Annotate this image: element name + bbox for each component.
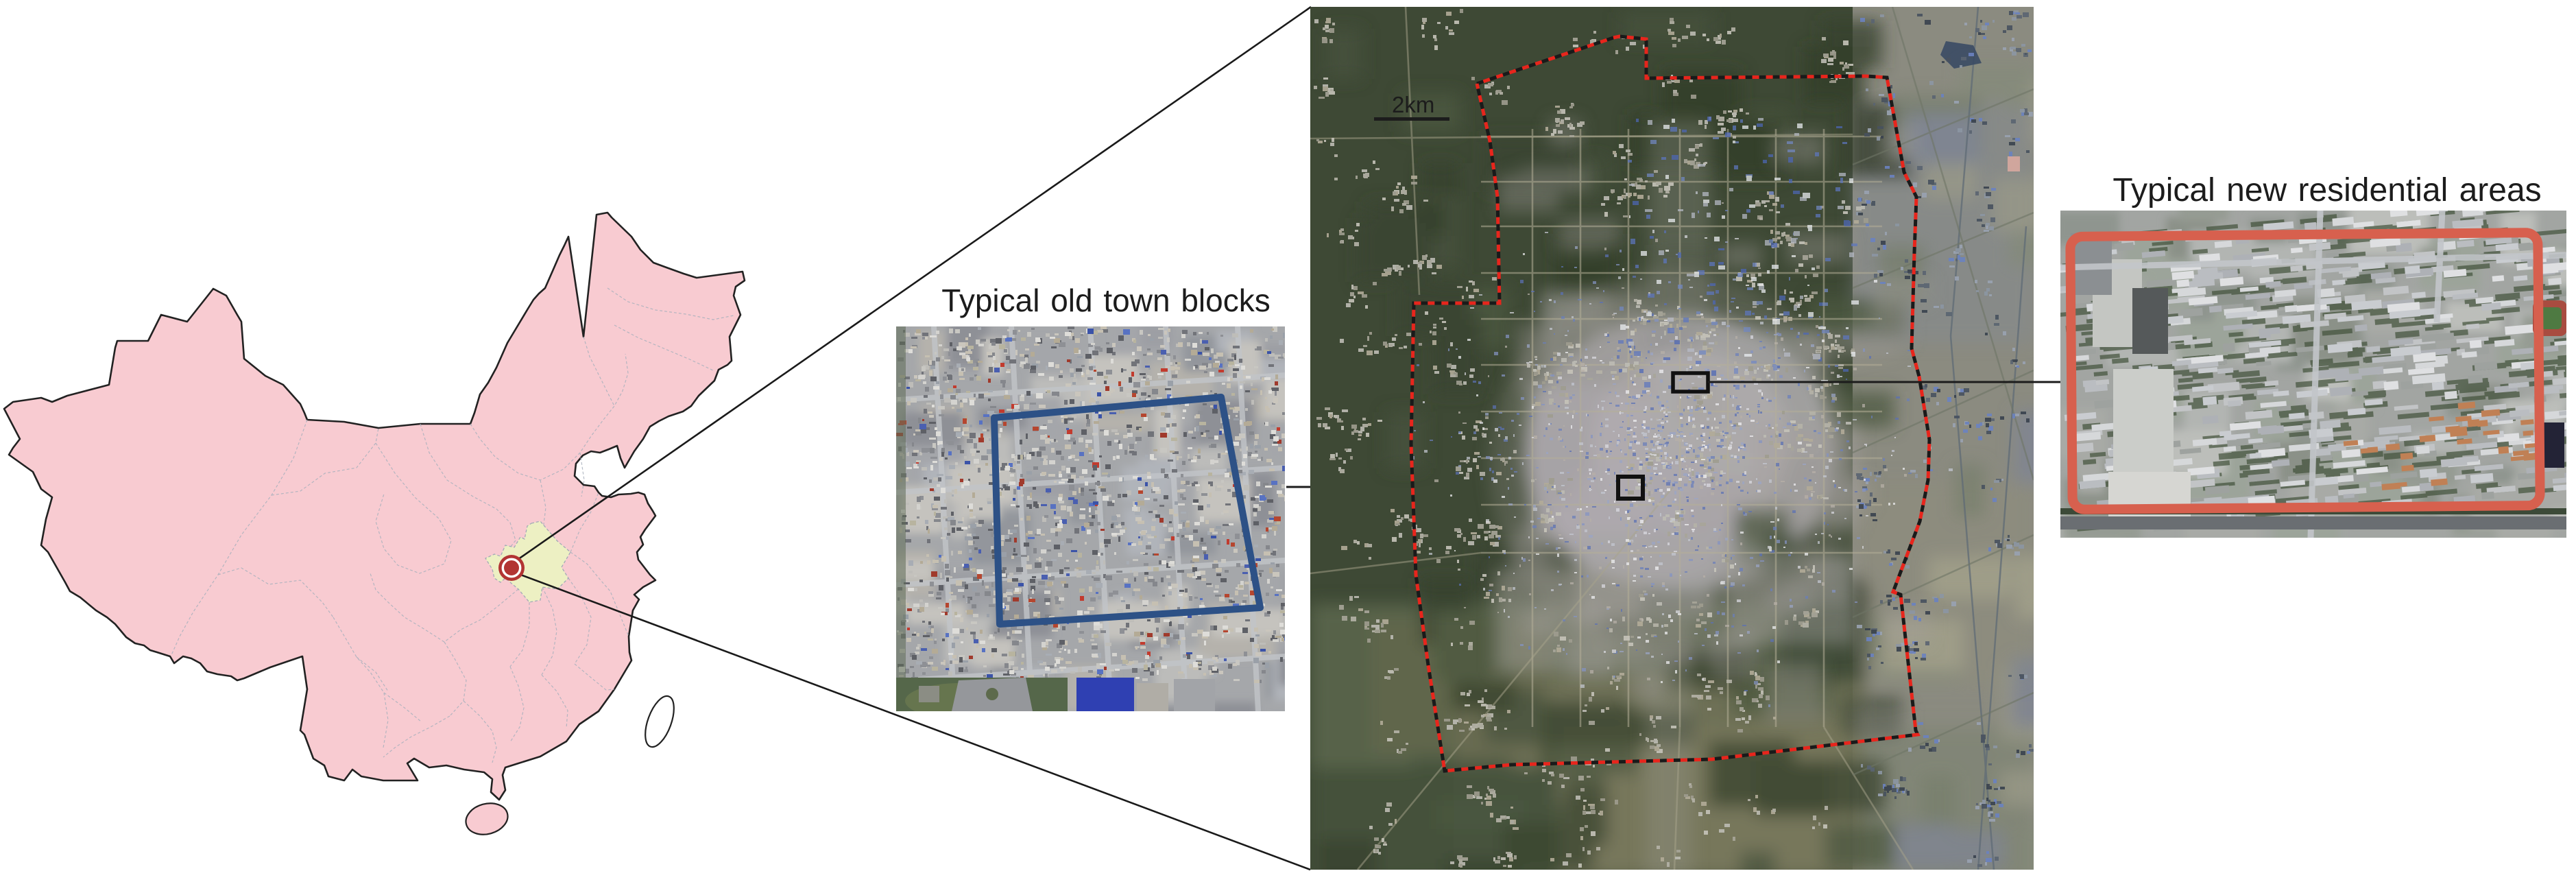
- svg-text:Typical old town blocks: Typical old town blocks: [941, 283, 1270, 318]
- svg-text:2km: 2km: [1392, 92, 1434, 117]
- svg-text:Typical new residential areas: Typical new residential areas: [2112, 172, 2541, 208]
